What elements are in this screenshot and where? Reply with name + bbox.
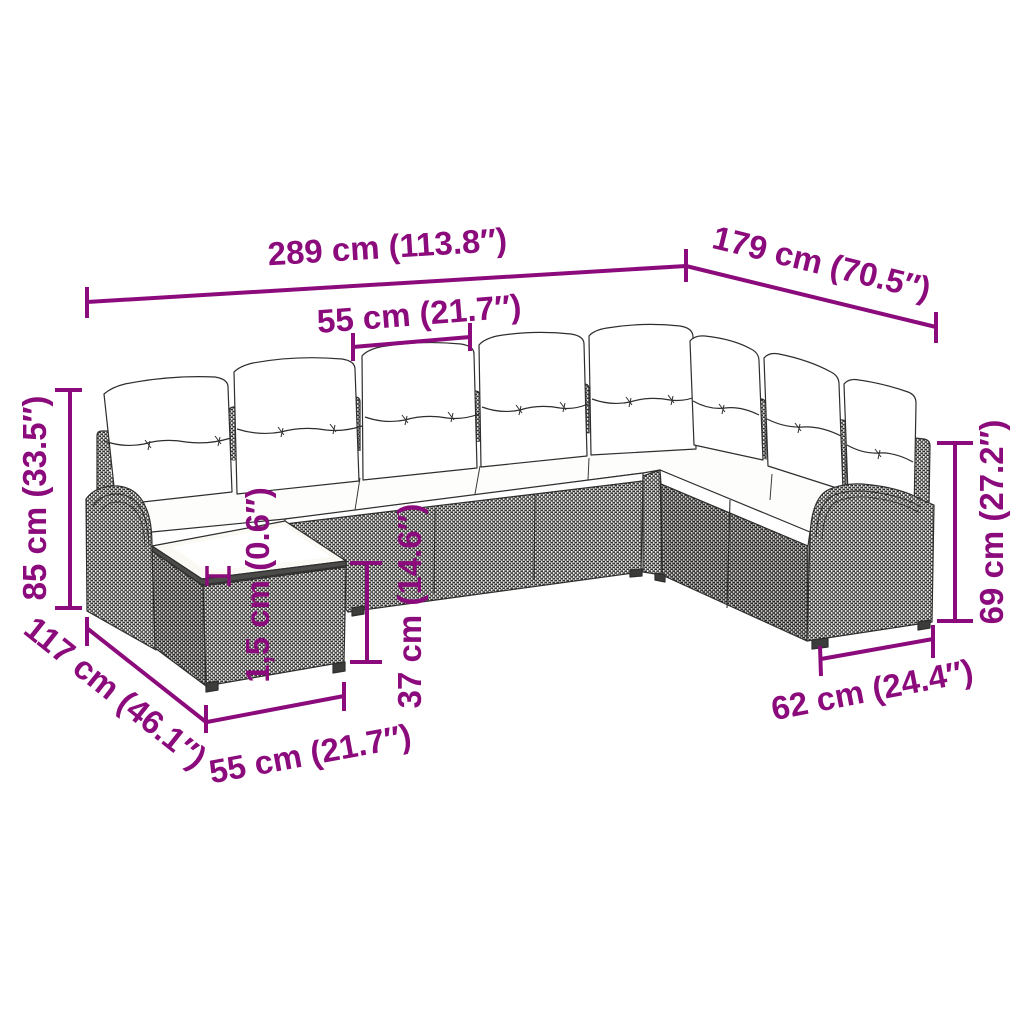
svg-text:85 cm (33.5″): 85 cm (33.5″) — [16, 396, 53, 601]
svg-text:37 cm (14.6″): 37 cm (14.6″) — [391, 504, 428, 709]
svg-text:289 cm (113.8″): 289 cm (113.8″) — [267, 221, 508, 273]
svg-text:55 cm (21.7″): 55 cm (21.7″) — [206, 717, 414, 791]
svg-text:179 cm (70.5″): 179 cm (70.5″) — [709, 218, 935, 307]
svg-text:55 cm (21.7″): 55 cm (21.7″) — [316, 287, 523, 340]
svg-text:62 cm (24.4″): 62 cm (24.4″) — [768, 652, 976, 727]
svg-text:69 cm (27.2″): 69 cm (27.2″) — [973, 420, 1010, 625]
svg-text:1,5 cm (0.6″): 1,5 cm (0.6″) — [239, 487, 276, 683]
